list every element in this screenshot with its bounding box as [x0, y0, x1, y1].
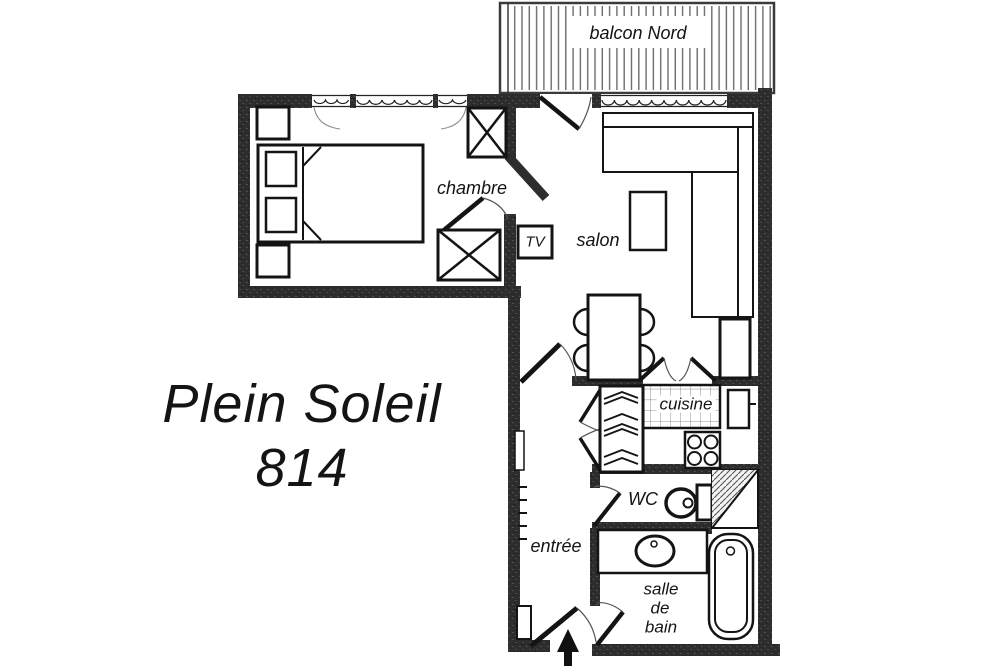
pillow [266, 152, 296, 186]
dining-furniture [574, 295, 654, 380]
room-label-living-room: salon [576, 231, 619, 249]
sofa-back-top [603, 113, 753, 127]
dining-table [588, 295, 640, 380]
floor-plan: balcon Nord chambre salon TV cuisine WC … [0, 0, 1000, 667]
wardrobe-top [468, 108, 506, 157]
bedroom-window-2 [356, 94, 433, 108]
wall-partition-lower [504, 214, 516, 290]
living-room-door [521, 344, 576, 382]
burner [705, 436, 718, 449]
label-tv: TV [525, 235, 544, 250]
wc-door [594, 486, 620, 526]
room-label-bedroom: chambre [437, 179, 507, 197]
wall-bedroom-south [238, 286, 521, 298]
bathtub [709, 534, 753, 639]
sofa-seat-right [692, 172, 738, 317]
residence-name: Plein Soleil [162, 377, 441, 431]
sofa-back-right [738, 127, 753, 317]
bedroom-door [444, 198, 508, 230]
window-swing-arc [314, 107, 340, 129]
room-label-entry: entrée [530, 537, 581, 555]
burner [688, 436, 701, 449]
chair [574, 309, 588, 335]
balcony [500, 3, 774, 93]
room-label-bathroom-line3: bain [645, 619, 677, 636]
nightstand [257, 107, 289, 139]
nightstand [257, 245, 289, 277]
room-label-wc: WC [628, 490, 658, 508]
room-label-balcony: balcon Nord [589, 24, 686, 42]
room-label-kitchen: cuisine [657, 396, 716, 413]
stove [685, 432, 720, 468]
bedroom-window-1 [312, 94, 350, 108]
radiator [517, 606, 531, 639]
window-swing-arc [441, 107, 466, 129]
wall-top-center [467, 94, 540, 108]
toilet-tank [697, 485, 712, 520]
fridge [728, 390, 756, 428]
chair [640, 309, 654, 335]
bathtub-drain [727, 547, 735, 555]
bedroom-window-3 [438, 94, 467, 108]
room-label-bathroom-line2: de [651, 600, 670, 617]
burner [688, 452, 701, 465]
coffee-table [630, 192, 666, 250]
apartment-number: 814 [255, 441, 348, 495]
living-room-window [601, 94, 727, 108]
wall-bottom-left [508, 640, 550, 652]
sofa-seat-top [603, 127, 738, 172]
floor-plan-drawing [0, 0, 1000, 667]
wc-fixtures [666, 470, 758, 528]
closet-doors [580, 390, 600, 470]
chair [574, 345, 588, 371]
toilet [666, 485, 712, 520]
technical-duct [712, 470, 758, 528]
wall-bedroom-west [238, 94, 250, 298]
burner [705, 452, 718, 465]
bathroom-door [597, 603, 623, 645]
wall-bottom [592, 644, 780, 656]
pillow [266, 198, 296, 232]
room-label-bathroom-line1: salle [644, 581, 679, 598]
sink-faucet [651, 541, 657, 547]
shelf-closet [600, 386, 643, 472]
wardrobe-bottom [438, 230, 500, 280]
wall-chamfer [508, 156, 546, 198]
wall-east [758, 88, 772, 656]
entrance-arrow [557, 629, 579, 666]
wall-niche [515, 431, 524, 470]
side-table [720, 319, 750, 378]
